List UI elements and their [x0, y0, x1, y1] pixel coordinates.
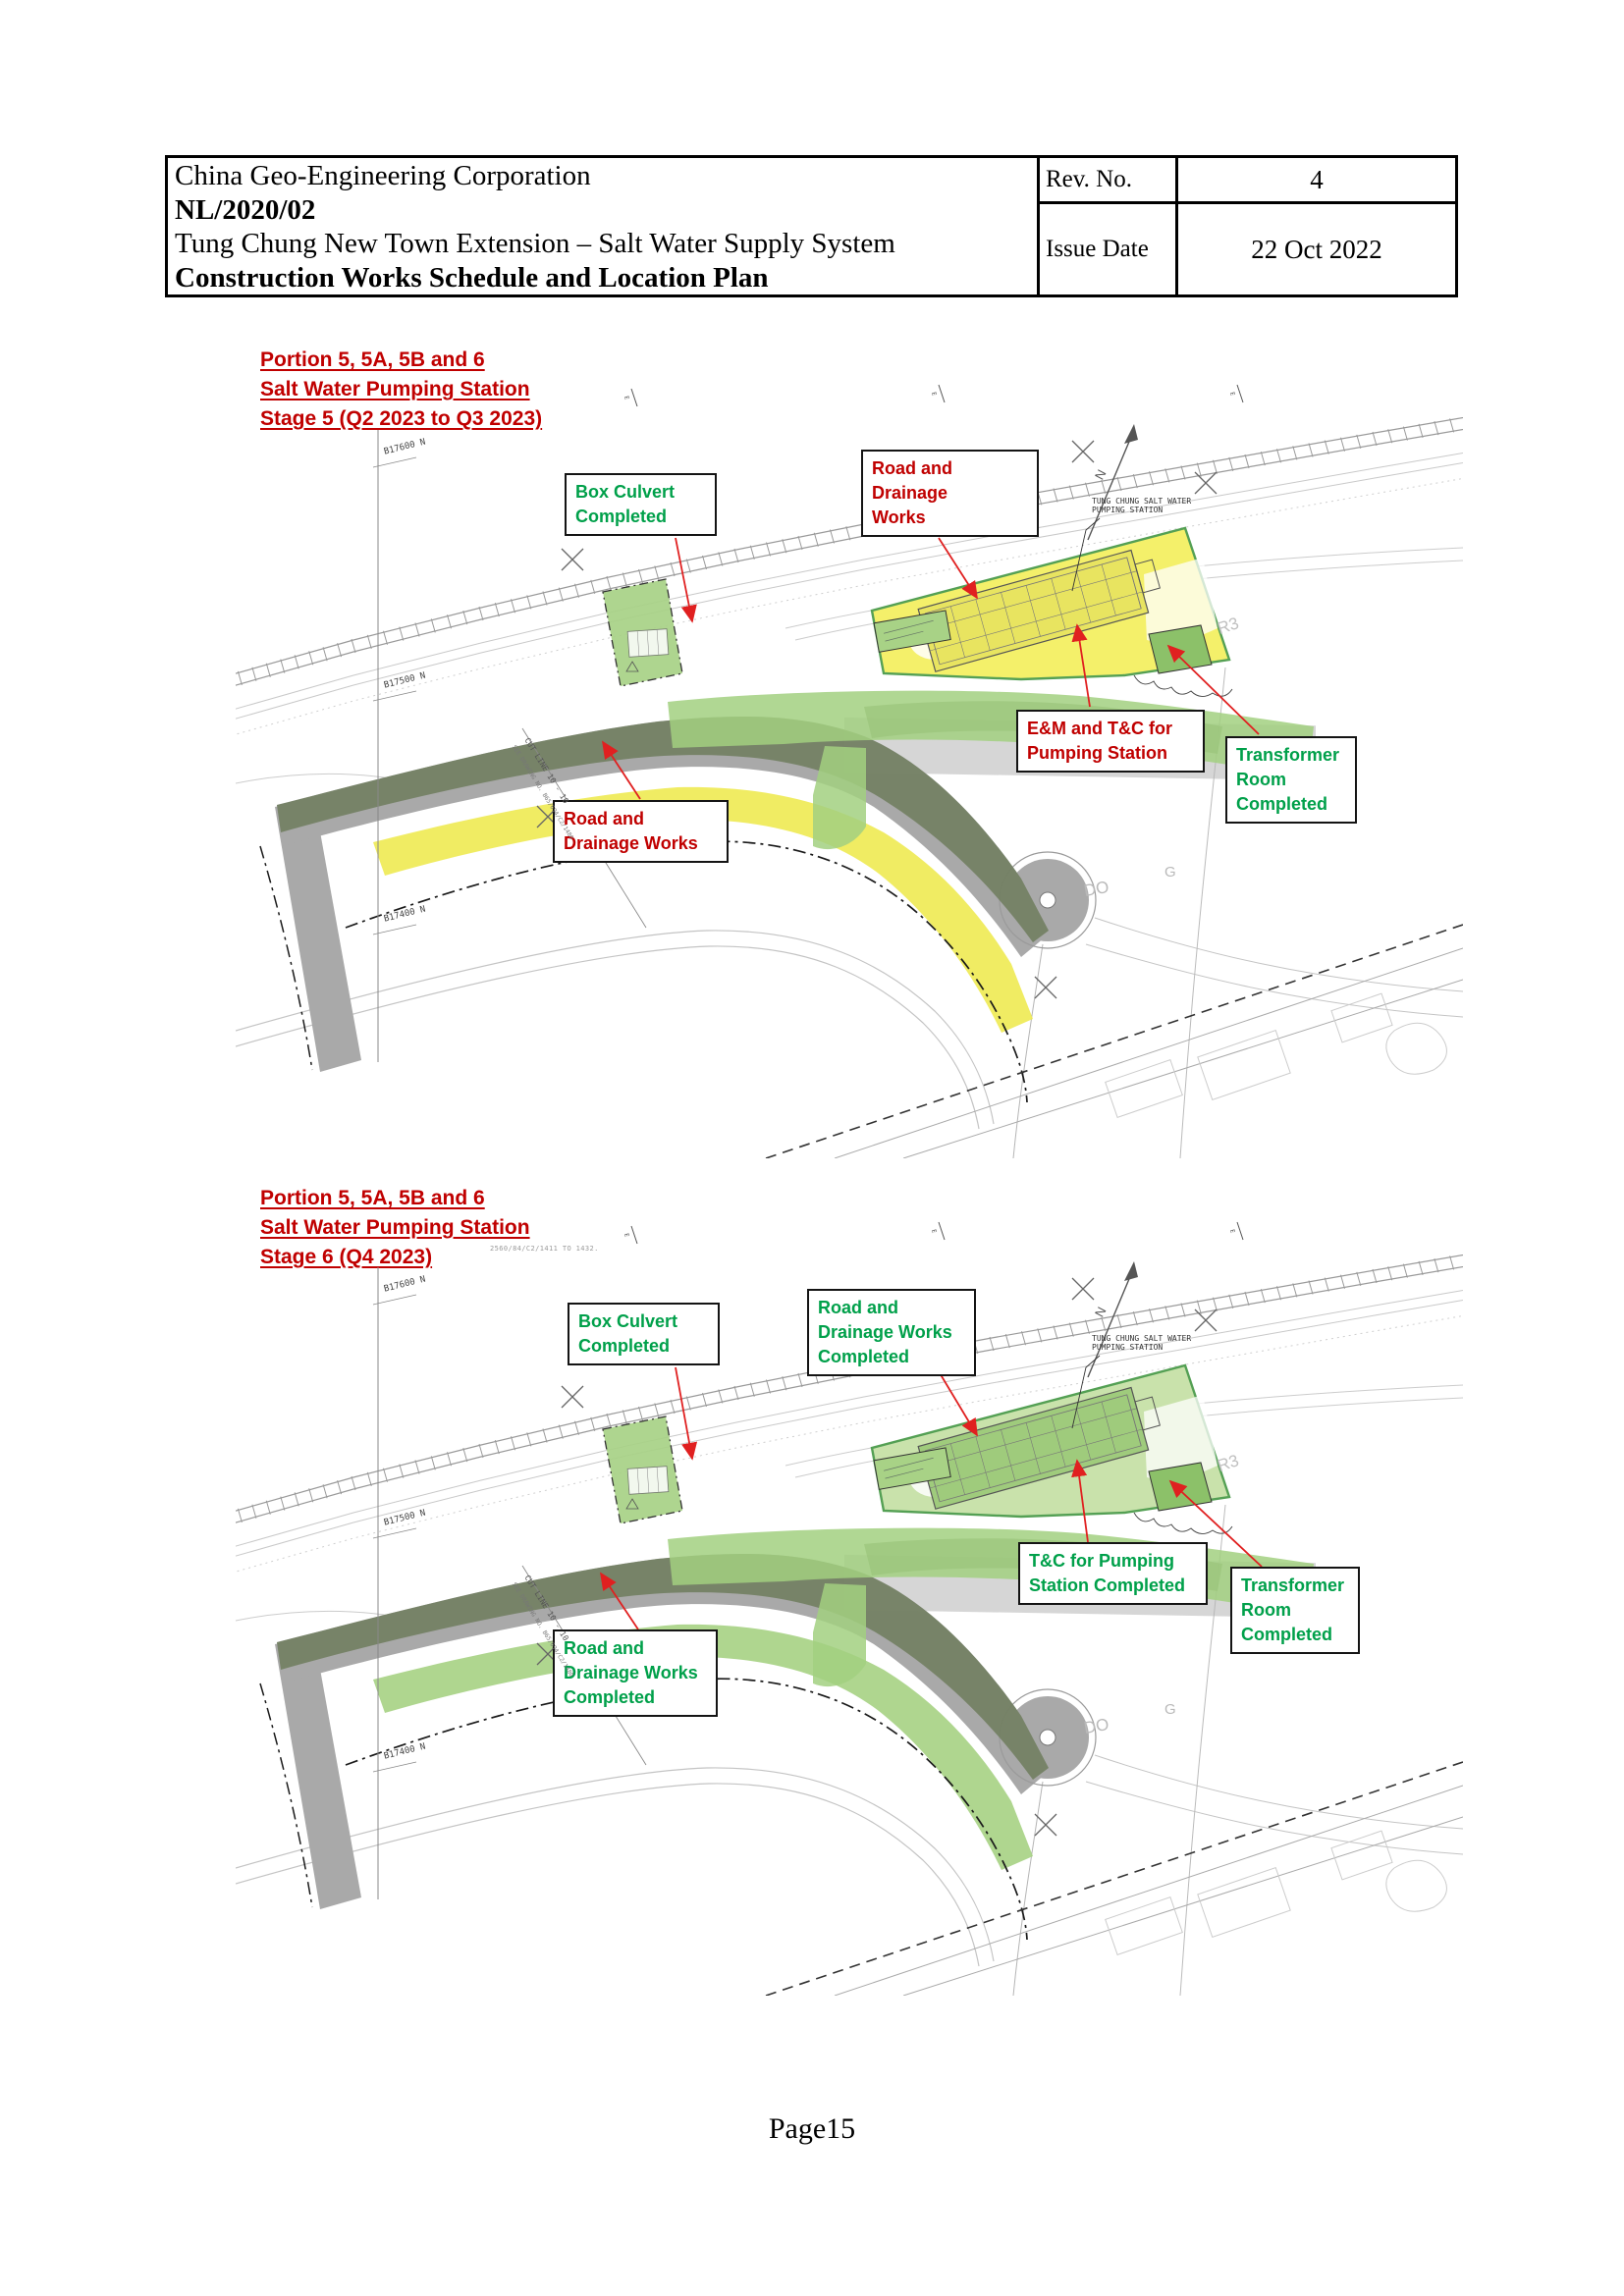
- svg-text:E: E: [1228, 1229, 1236, 1235]
- issue-date-value: 22 Oct 2022: [1175, 204, 1455, 294]
- svg-text:E: E: [623, 396, 630, 401]
- callout-road-drainage-stage6: Road and Drainage Works Completed: [807, 1289, 976, 1376]
- callout-road-drainage-stage5: Road and Drainage Works: [861, 450, 1039, 537]
- area-g-label: G: [1164, 1701, 1176, 1718]
- rev-no-value: 4: [1175, 158, 1455, 204]
- rev-no-label: Rev. No.: [1040, 158, 1175, 204]
- callout-box-culvert-stage5: Box Culvert Completed: [565, 473, 717, 536]
- callout-box-culvert-stage6: Box Culvert Completed: [568, 1303, 720, 1365]
- contract-number: NL/2020/02: [175, 193, 1030, 228]
- pumping-station-map-label: TUNG CHUNG SALT WATERPUMPING STATION: [1092, 1334, 1191, 1352]
- issue-date-label: Issue Date: [1040, 204, 1175, 294]
- pumping-station-map-label: TUNG CHUNG SALT WATERPUMPING STATION: [1092, 497, 1191, 514]
- svg-text:E: E: [1228, 392, 1236, 398]
- callout-road-drainage-sw-stage5: Road and Drainage Works: [553, 800, 729, 863]
- stage5-title-line1: Portion 5, 5A, 5B and 6: [260, 346, 542, 375]
- svg-text:E: E: [623, 1233, 630, 1239]
- svg-text:E: E: [930, 392, 938, 398]
- project-title: Tung Chung New Town Extension – Salt Wat…: [175, 227, 1030, 261]
- stage6-title-line1: Portion 5, 5A, 5B and 6: [260, 1184, 530, 1213]
- document-title: Construction Works Schedule and Location…: [175, 261, 1030, 295]
- callout-tc-pumping-stage6: T&C for Pumping Station Completed: [1018, 1542, 1208, 1605]
- callout-em-tc-stage5: E&M and T&C for Pumping Station: [1016, 710, 1205, 773]
- stage5-location-plan: E E E Box Culvert Completed Road and Dra…: [236, 383, 1463, 1158]
- callout-road-drainage-sw-stage6: Road and Drainage Works Completed: [553, 1629, 718, 1717]
- document-page: China Geo-Engineering Corporation NL/202…: [0, 0, 1624, 2296]
- header-title-cell: China Geo-Engineering Corporation NL/202…: [168, 158, 1040, 294]
- svg-text:E: E: [930, 1229, 938, 1235]
- company-name: China Geo-Engineering Corporation: [175, 159, 1030, 193]
- callout-transformer-stage5: Transformer Room Completed: [1225, 736, 1357, 824]
- callout-transformer-stage6: Transformer Room Completed: [1230, 1567, 1360, 1654]
- stage6-location-plan: E E E Box Culvert Completed Road and Dra…: [236, 1220, 1463, 1996]
- header-meta-grid: Rev. No. 4 Issue Date 22 Oct 2022: [1040, 158, 1455, 294]
- page-number: Page15: [0, 2112, 1624, 2146]
- area-g-label: G: [1164, 864, 1176, 881]
- header-table: China Geo-Engineering Corporation NL/202…: [165, 155, 1458, 297]
